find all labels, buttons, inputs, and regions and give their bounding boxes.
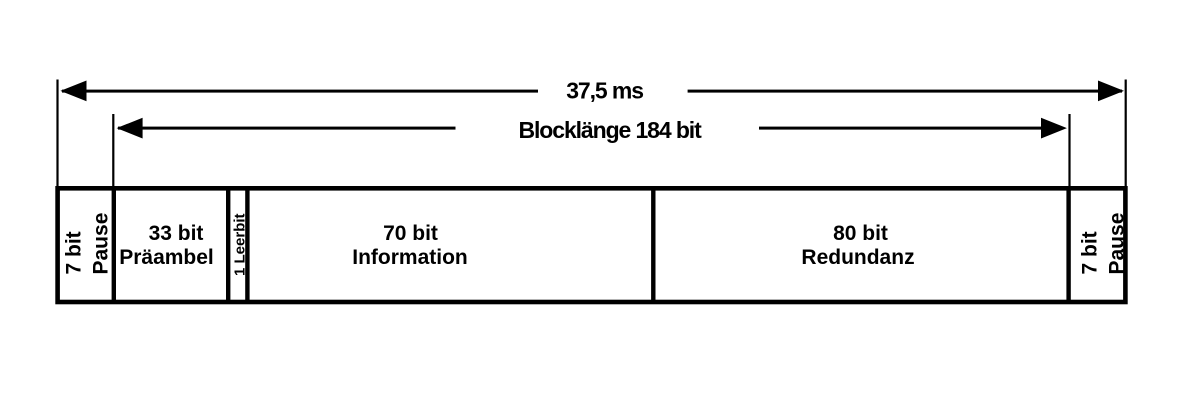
svg-text:Information: Information — [352, 246, 468, 269]
svg-text:1 Leerbit: 1 Leerbit — [232, 213, 249, 276]
svg-text:33 bit: 33 bit — [149, 222, 204, 245]
svg-text:80 bit: 80 bit — [833, 222, 888, 245]
svg-text:Präambel: Präambel — [119, 246, 214, 269]
svg-text:Pause: Pause — [1106, 213, 1129, 275]
svg-text:37,5 ms: 37,5 ms — [566, 78, 643, 104]
svg-text:Blocklänge 184 bit: Blocklänge 184 bit — [519, 117, 703, 143]
svg-text:70 bit: 70 bit — [383, 222, 438, 245]
svg-text:7 bit: 7 bit — [63, 231, 86, 274]
svg-text:Redundanz: Redundanz — [801, 246, 914, 269]
svg-text:7 bit: 7 bit — [1079, 231, 1102, 274]
svg-text:Pause: Pause — [90, 213, 113, 275]
